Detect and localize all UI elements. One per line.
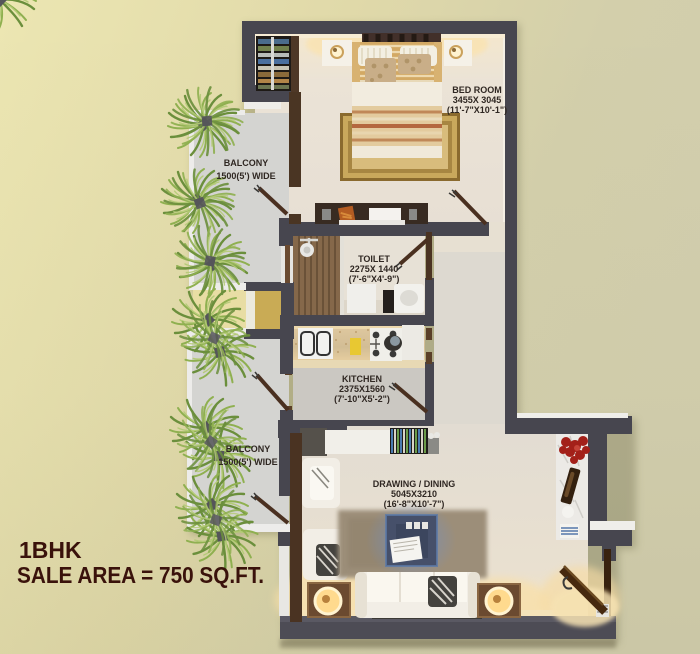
svg-text:2375X1560: 2375X1560 — [339, 384, 385, 394]
svg-text:BALCONY: BALCONY — [226, 444, 271, 454]
svg-text:1500(5') WIDE: 1500(5') WIDE — [216, 171, 275, 181]
svg-text:3455X 3045: 3455X 3045 — [453, 95, 502, 105]
svg-text:(11'-7"X10'-1"): (11'-7"X10'-1") — [447, 105, 507, 115]
svg-text:SALE AREA = 750 SQ.FT.: SALE AREA = 750 SQ.FT. — [17, 562, 264, 588]
svg-text:1500(5') WIDE: 1500(5') WIDE — [218, 457, 277, 467]
svg-text:TOILET: TOILET — [358, 254, 390, 264]
svg-text:KITCHEN: KITCHEN — [342, 374, 382, 384]
svg-text:BALCONY: BALCONY — [224, 158, 269, 168]
svg-text:2275X 1440: 2275X 1440 — [350, 264, 399, 274]
svg-text:(7'-6"X4'-9"): (7'-6"X4'-9") — [349, 274, 400, 284]
svg-text:(7'-10"X5'-2"): (7'-10"X5'-2") — [334, 394, 390, 404]
svg-text:BED ROOM: BED ROOM — [452, 85, 502, 95]
svg-text:DRAWING / DINING: DRAWING / DINING — [373, 479, 456, 489]
svg-text:1BHK: 1BHK — [19, 537, 82, 563]
svg-text:5045X3210: 5045X3210 — [391, 489, 437, 499]
svg-text:(16'-8"X10'-7"): (16'-8"X10'-7") — [384, 499, 445, 509]
